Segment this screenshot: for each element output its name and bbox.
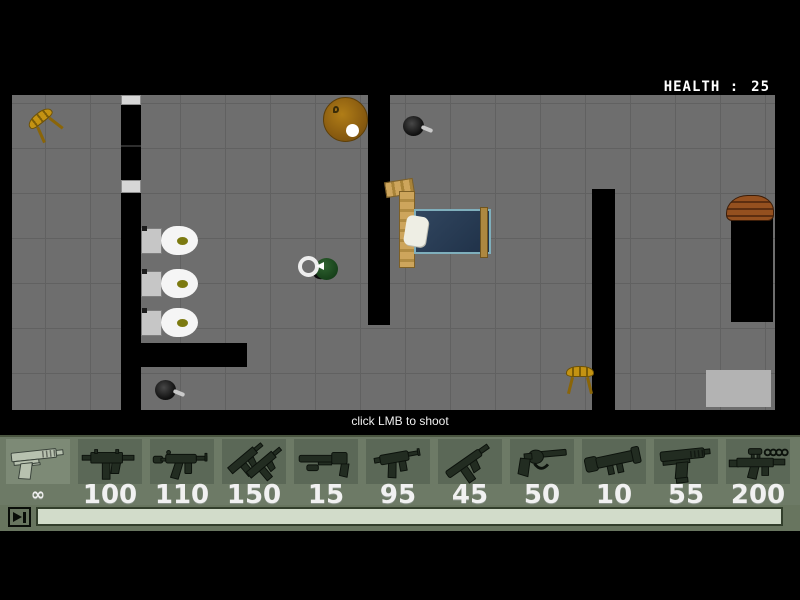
chair-bottom-right <box>566 366 594 400</box>
frying-pan-pickup-1 <box>403 116 429 140</box>
scroll-row <box>0 505 800 531</box>
weapon-slot-uzi[interactable] <box>78 439 142 484</box>
tec9-icon <box>439 439 501 485</box>
toilet-1 <box>141 226 201 256</box>
chair-leg <box>567 377 574 394</box>
game-viewport: HEALTH :25 <box>0 0 800 600</box>
chair-leg <box>48 117 63 130</box>
uzi-icon <box>79 439 141 485</box>
bed-pillow <box>403 214 429 247</box>
play-next-icon[interactable] <box>8 507 31 527</box>
toilet-2 <box>141 269 201 299</box>
wall-divider <box>121 145 141 147</box>
chair-top-left <box>26 105 69 149</box>
wall-horizontal <box>122 343 247 367</box>
toilet-3 <box>141 308 201 338</box>
muzzle-wedge-icon <box>316 262 324 270</box>
desert-eagle-icon <box>7 439 69 485</box>
sawnoff-shotgun-icon <box>295 439 357 485</box>
weapon-slot-mp5[interactable] <box>150 439 214 484</box>
weapon-slot-rocket-launcher[interactable] <box>582 439 646 484</box>
wall-right-vertical <box>592 189 615 410</box>
scoped-rifle-icon <box>727 439 789 485</box>
skorpion-icon <box>367 439 429 485</box>
weapon-slot-auto-pistol[interactable] <box>654 439 718 484</box>
round-table <box>323 97 368 142</box>
door-top <box>121 95 141 105</box>
revolver-icon <box>511 439 573 485</box>
weapon-slot-revolver[interactable] <box>510 439 574 484</box>
chair-backrest <box>566 366 594 377</box>
weapon-slot-desert-eagle[interactable] <box>6 439 70 484</box>
table-trinket <box>333 106 339 113</box>
chair-leg <box>586 377 593 394</box>
health-label: HEALTH : <box>664 79 739 95</box>
auto-pistol-icon <box>655 439 717 485</box>
weapon-slot-tec9[interactable] <box>438 439 502 484</box>
weapon-slot-dual-uzi[interactable] <box>222 439 286 484</box>
map-floor[interactable] <box>12 95 775 410</box>
wood-crate <box>726 195 774 221</box>
weapon-slot-skorpion[interactable] <box>366 439 430 484</box>
gray-rug <box>706 370 771 407</box>
table-lamp <box>346 124 359 137</box>
weapon-slot-sawnoff-shotgun[interactable] <box>294 439 358 484</box>
rocket-launcher-icon <box>583 439 645 485</box>
dual-uzi-icon <box>223 439 285 485</box>
bed <box>385 180 489 270</box>
hint-text: click LMB to shoot <box>0 414 800 428</box>
mp5-icon <box>151 439 213 485</box>
scroll-track[interactable] <box>36 507 783 526</box>
frying-pan-pickup-2 <box>155 380 181 404</box>
weapon-bar: ∞100110150159545501055200 <box>0 435 800 531</box>
health-value: 25 <box>751 79 770 95</box>
weapon-slot-scoped-rifle[interactable] <box>726 439 790 484</box>
health-display: HEALTH :25 <box>664 79 770 95</box>
bed-footboard <box>480 207 488 258</box>
chair-leg <box>36 126 46 143</box>
wall-block-right <box>731 218 773 322</box>
door-toilet-room <box>121 180 141 193</box>
